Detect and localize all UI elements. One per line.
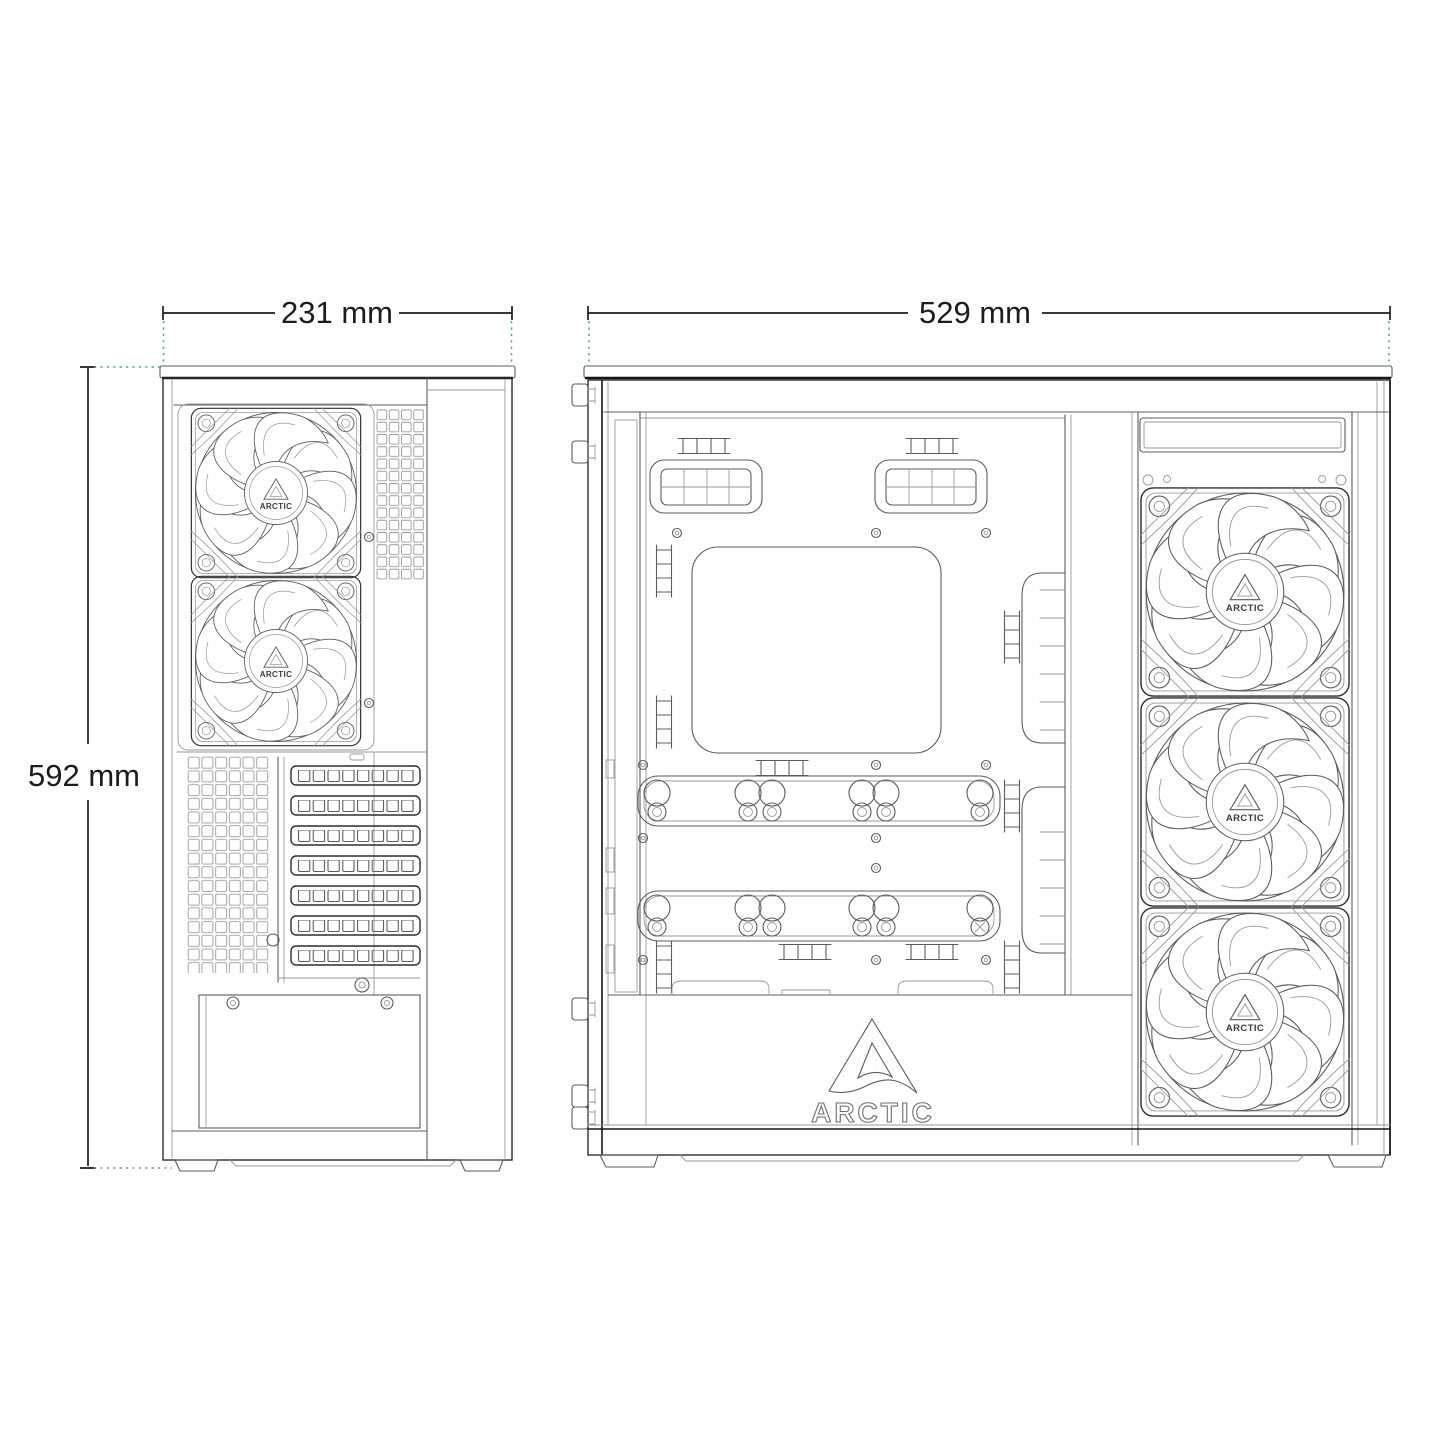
- dimension-height: 592 mm: [28, 367, 172, 1168]
- cable-channel-grommets: [1022, 573, 1065, 953]
- case-foot: [175, 1160, 218, 1171]
- drive-rail: [638, 891, 1000, 941]
- rear-fan-bottom: [178, 563, 373, 758]
- cpu-cutout: [692, 547, 941, 753]
- front-fan-top: [1125, 472, 1365, 712]
- front-top-slot: [1140, 418, 1345, 452]
- rear-view-drawing: ARCTIC ARCTIC: [160, 366, 515, 1171]
- technical-drawing: 231 mm 529 mm 592 mm ARCTIC ARCTIC: [0, 0, 1445, 1445]
- fan-hub-brand-label: ARCTIC: [1226, 813, 1264, 824]
- fan-hub-brand-label: ARCTIC: [1226, 603, 1264, 614]
- vent-grid-bottom: [187, 756, 269, 973]
- front-fan-bottom: [1125, 892, 1365, 1132]
- brand-logo: ARCTIC: [811, 1019, 935, 1128]
- dimension-side-width: 529 mm: [588, 295, 1390, 364]
- case-foot: [1328, 1155, 1386, 1167]
- drive-rail: [638, 776, 1000, 826]
- rear-fan-top: [178, 395, 373, 590]
- rear-vent-strip: [615, 420, 637, 992]
- dimension-label-height: 592 mm: [28, 758, 140, 793]
- expansion-slots: [291, 766, 420, 978]
- cable-grommet: [650, 460, 762, 513]
- dimension-label-front-width: 231 mm: [281, 295, 393, 330]
- fan-hub-brand-label: ARCTIC: [260, 670, 293, 679]
- fan-hub-brand-label: ARCTIC: [1226, 1023, 1264, 1034]
- case-foot: [600, 1155, 658, 1167]
- dimension-front-width: 231 mm: [163, 295, 512, 364]
- front-fan-middle: [1125, 682, 1365, 922]
- fan-hub-brand-label: ARCTIC: [260, 502, 293, 511]
- vent-grid-top: [376, 409, 425, 580]
- side-view-drawing: ARCTIC ARCTIC ARCTIC ARCTIC: [572, 366, 1392, 1167]
- cable-grommet: [875, 460, 987, 513]
- brand-logo-label: ARCTIC: [811, 1097, 935, 1128]
- dimension-label-side-width: 529 mm: [919, 295, 1031, 330]
- case-dimension-diagram: 231 mm 529 mm 592 mm ARCTIC ARCTIC: [0, 0, 1445, 1445]
- psu-bay: [199, 995, 420, 1128]
- case-foot: [460, 1160, 503, 1171]
